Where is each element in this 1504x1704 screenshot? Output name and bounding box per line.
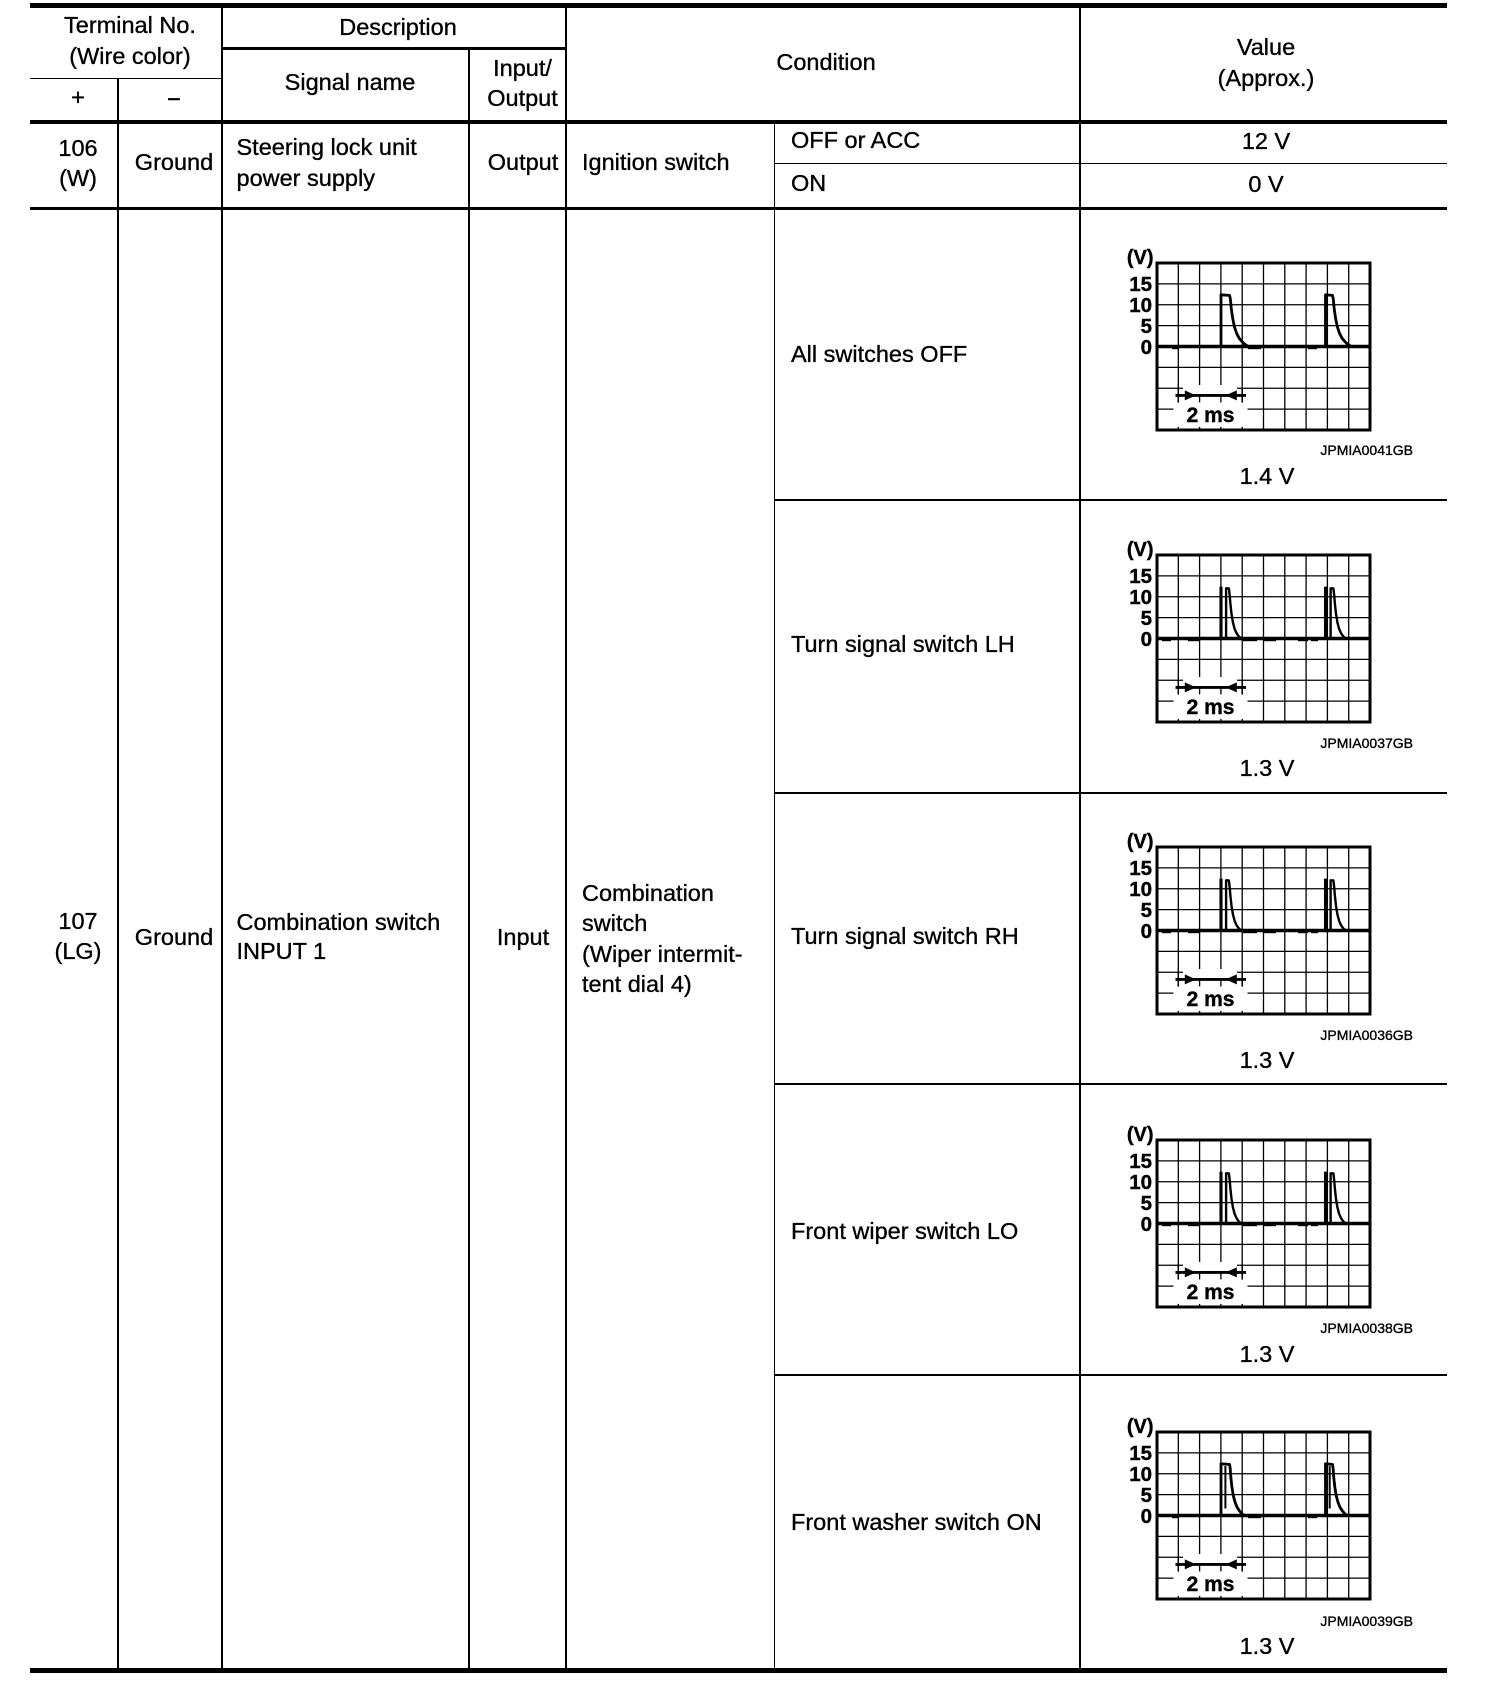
svg-text:15: 15 xyxy=(1129,857,1152,880)
svg-text:2 ms: 2 ms xyxy=(1187,404,1235,427)
svg-text:10: 10 xyxy=(1129,1463,1152,1486)
svg-text:5: 5 xyxy=(1141,899,1152,922)
svg-text:5: 5 xyxy=(1141,315,1152,338)
svg-text:0: 0 xyxy=(1141,1213,1152,1236)
svg-text:10: 10 xyxy=(1129,294,1152,317)
svg-text:5: 5 xyxy=(1141,1192,1152,1215)
svg-text:0: 0 xyxy=(1141,920,1152,943)
svg-text:15: 15 xyxy=(1129,1442,1152,1465)
svg-text:2 ms: 2 ms xyxy=(1187,1281,1235,1304)
svg-text:0: 0 xyxy=(1141,628,1152,651)
svg-text:(V): (V) xyxy=(1127,1416,1154,1438)
svg-text:0: 0 xyxy=(1141,336,1152,359)
svg-text:15: 15 xyxy=(1129,1150,1152,1173)
svg-text:15: 15 xyxy=(1129,273,1152,296)
svg-text:2 ms: 2 ms xyxy=(1187,1573,1235,1596)
svg-text:2 ms: 2 ms xyxy=(1187,696,1235,719)
svg-text:(V): (V) xyxy=(1127,1124,1154,1146)
svg-text:5: 5 xyxy=(1141,607,1152,630)
svg-text:(V): (V) xyxy=(1127,831,1154,853)
svg-text:0: 0 xyxy=(1141,1505,1152,1528)
svg-text:15: 15 xyxy=(1129,565,1152,588)
svg-text:10: 10 xyxy=(1129,878,1152,901)
svg-text:(V): (V) xyxy=(1127,539,1154,561)
svg-text:10: 10 xyxy=(1129,1171,1152,1194)
svg-text:10: 10 xyxy=(1129,586,1152,609)
svg-text:5: 5 xyxy=(1141,1484,1152,1507)
svg-text:2 ms: 2 ms xyxy=(1187,988,1235,1011)
svg-text:(V): (V) xyxy=(1127,247,1154,269)
